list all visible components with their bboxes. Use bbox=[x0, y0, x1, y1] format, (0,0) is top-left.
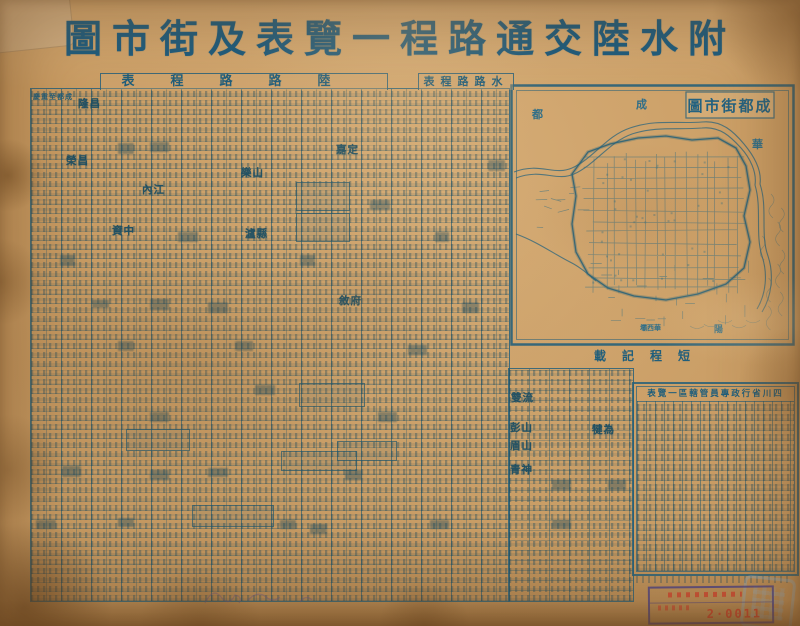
sheet-title: 圖市街及表覽一程路通交陸水附 bbox=[0, 8, 800, 63]
text-blob bbox=[208, 302, 228, 313]
note-box bbox=[192, 505, 274, 527]
note-box bbox=[296, 213, 350, 242]
text-blob bbox=[488, 160, 505, 171]
text-blob bbox=[435, 232, 449, 242]
place-name: 樂山 bbox=[241, 165, 264, 180]
text-blob bbox=[378, 412, 397, 422]
admin-table-body bbox=[637, 401, 794, 571]
place-name: 隆昌 bbox=[78, 96, 101, 111]
text-blob bbox=[150, 412, 169, 422]
text-blob bbox=[552, 480, 571, 490]
place-name: 青神 bbox=[510, 462, 533, 477]
text-blob bbox=[408, 345, 427, 355]
text-blob bbox=[60, 255, 75, 266]
water-table-header-tab: 表程路路水 bbox=[418, 73, 514, 90]
land-table-header-tab: 表程路路陸 bbox=[100, 73, 388, 90]
text-blob bbox=[62, 466, 81, 477]
map-edge-label: 壩西華 bbox=[640, 323, 661, 333]
admin-table-header: 表覽一區轄管員專政行省川四 bbox=[637, 387, 794, 402]
place-name: 犍為 bbox=[592, 422, 615, 437]
place-name: 榮昌 bbox=[66, 153, 89, 168]
text-blob bbox=[462, 302, 479, 313]
table-text-texture bbox=[637, 401, 794, 571]
street-grid bbox=[536, 152, 749, 327]
map-edge-label: 成 bbox=[636, 96, 647, 112]
text-blob bbox=[430, 520, 449, 529]
map-title: 圖市街都成 bbox=[687, 97, 772, 115]
text-blob bbox=[36, 520, 56, 529]
text-blob bbox=[608, 480, 626, 490]
place-name: 眉山 bbox=[510, 438, 533, 453]
place-name: 彭山 bbox=[510, 420, 533, 435]
text-blob bbox=[310, 524, 327, 534]
note-box bbox=[299, 383, 365, 407]
text-blob bbox=[118, 143, 134, 154]
city-blocks bbox=[592, 158, 729, 283]
place-name: 敘府 bbox=[339, 293, 362, 308]
map-sheet: 圖市街及表覽一程路通交陸水附 表程路路陸 表程路路水 慶重至都成 載記程短 bbox=[0, 0, 800, 626]
map-edge-label: 華 bbox=[752, 136, 763, 152]
note-box bbox=[337, 441, 397, 461]
text-blob bbox=[208, 468, 228, 477]
river-lines bbox=[514, 122, 771, 312]
map-edge-label: 陽 bbox=[714, 322, 723, 335]
text-blob bbox=[150, 299, 169, 310]
text-blob bbox=[235, 341, 253, 351]
place-name: 內江 bbox=[142, 182, 165, 197]
text-blob bbox=[118, 341, 134, 351]
text-blob bbox=[150, 470, 169, 480]
accession-stamp: 2·0011 bbox=[648, 585, 774, 624]
text-blob bbox=[300, 255, 315, 266]
stamp-red-text-row bbox=[658, 605, 692, 610]
place-name: 雙流 bbox=[511, 390, 534, 405]
text-blob bbox=[370, 200, 390, 210]
text-blob bbox=[345, 470, 362, 480]
text-blob bbox=[150, 142, 169, 152]
place-name: 資中 bbox=[112, 223, 135, 238]
short-routes-header: 載記程短 bbox=[580, 347, 720, 364]
chengdu-map-drawing: 圖市街都成 bbox=[510, 84, 795, 346]
text-blob bbox=[255, 385, 275, 395]
city-wall bbox=[572, 136, 750, 300]
map-edge-label: 都 bbox=[532, 106, 543, 122]
stamp-divider bbox=[650, 601, 772, 603]
map-outer-border bbox=[512, 86, 794, 345]
chengdu-map-inset: 圖市街都成 都成華壩西華陽 bbox=[510, 84, 795, 346]
text-blob bbox=[552, 520, 571, 529]
place-name: 瀘縣 bbox=[245, 226, 268, 241]
stamp-number: 2·0011 bbox=[707, 606, 763, 621]
admin-districts-table: 表覽一區轄管員專政行省川四 bbox=[632, 382, 799, 576]
text-blob bbox=[92, 300, 109, 308]
map-inner-border bbox=[517, 91, 789, 340]
stamp-red-text-row bbox=[668, 592, 742, 598]
place-name: 嘉定 bbox=[336, 142, 359, 157]
admin-table-inner-border: 表覽一區轄管員專政行省川四 bbox=[636, 386, 795, 572]
text-blob bbox=[280, 520, 296, 529]
text-blob bbox=[118, 518, 134, 527]
note-box bbox=[126, 429, 190, 451]
note-box bbox=[296, 182, 350, 211]
text-blob bbox=[178, 232, 198, 242]
